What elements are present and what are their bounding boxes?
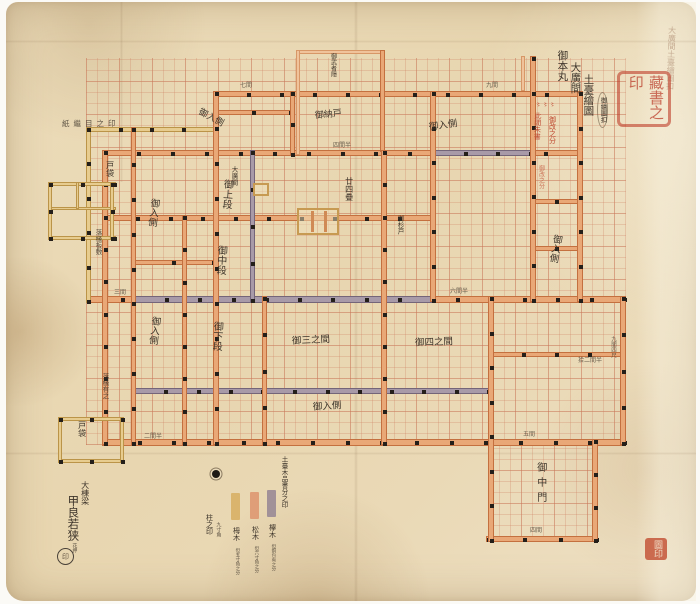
pillar-dot [81, 183, 85, 187]
note-ochien: 落椽有之 [101, 373, 108, 399]
legend-item-label: 松木 [251, 526, 259, 540]
foundation-beam [530, 199, 581, 204]
pillar-dot [49, 210, 53, 214]
pillar-dot [490, 401, 494, 405]
pillar-dot [532, 230, 536, 234]
foundation-beam [521, 56, 525, 91]
dim-label: 九間 [486, 83, 498, 89]
pillar-dot [150, 128, 154, 132]
pillar-dot [456, 298, 460, 302]
pillar-dot [555, 353, 559, 357]
pillar-dot [594, 440, 598, 444]
pillar-dot [579, 161, 583, 165]
pillar-dot [87, 162, 91, 166]
legend-swatch-yellow [231, 493, 240, 520]
pillar-dot [490, 435, 494, 439]
pillar-dot [291, 123, 295, 127]
small-cabinet-box [253, 183, 269, 196]
pillar-dot [432, 299, 436, 303]
pillar-dot [579, 299, 583, 303]
pillar-dot [383, 345, 387, 349]
pillar-dot [172, 261, 176, 265]
pillar-dot [432, 230, 436, 234]
title-line-2: 大廣間 [569, 62, 580, 94]
pillar-dot [519, 441, 523, 445]
pillar-dot [104, 313, 108, 317]
pillar-dot [532, 299, 536, 303]
pillar-dot [496, 152, 500, 156]
pillar-dot [215, 92, 219, 96]
pillar-dot [252, 111, 256, 115]
pillar-dot [276, 441, 280, 445]
pillar-dot [137, 152, 141, 156]
pillar-dot [594, 506, 598, 510]
legend-swatch-gray [267, 490, 276, 517]
pillar-dot [132, 337, 136, 341]
pillar-dot [365, 217, 369, 221]
pillar-dot [415, 441, 419, 445]
foundation-beam [620, 296, 626, 445]
legend-item-label: 栂木 [232, 527, 240, 541]
pillar-dot [383, 410, 387, 414]
pillar-dot [413, 93, 417, 97]
foundation-beam [48, 182, 116, 186]
pillar-dot [215, 197, 219, 201]
pillar-dot [111, 237, 115, 241]
pillar-dot [383, 216, 387, 220]
room-label-tobukuro-top: 戸袋 [105, 161, 114, 177]
pillar-dot [104, 410, 108, 414]
pillar-dot [183, 281, 187, 285]
foundation-beam [131, 127, 136, 445]
pillar-dot [298, 298, 302, 302]
pillar-dot [579, 196, 583, 200]
pillar-dot [215, 442, 219, 446]
pillar-dot [622, 406, 626, 410]
foundation-beam [102, 439, 626, 446]
pillar-dot [87, 266, 91, 270]
pillar-dot [280, 93, 284, 97]
legend-pillar-dot-symbol [212, 470, 220, 478]
pillar-dot [579, 127, 583, 131]
pillar-dot [532, 161, 536, 165]
legend-pillar-note: 九寸角 [215, 522, 220, 537]
pillar-dot [455, 390, 459, 394]
pillar-dot [136, 217, 140, 221]
pillar-dot [132, 233, 136, 237]
red-tick-marks: 〻〻〻 [536, 103, 557, 108]
paper-joint-mark: 紙繼目之印 [62, 120, 120, 128]
pillar-dot [132, 128, 136, 132]
foundation-beam [120, 417, 124, 463]
pillar-dot [183, 410, 187, 414]
foundation-beam [577, 91, 583, 302]
pillar-dot [104, 151, 108, 155]
pillar-dot [594, 473, 598, 477]
foundation-beam [58, 459, 124, 463]
pillar-dot [132, 302, 136, 306]
note-ochien-itajiki: 落椽板敷 [94, 229, 101, 255]
pillar-dot [432, 265, 436, 269]
legend-pillar-label: 柱之印 [205, 514, 213, 535]
pillar-dot [263, 442, 267, 446]
pillar-dot [358, 390, 362, 394]
pillar-dot [138, 441, 142, 445]
legend-item-note: 但六寸角之分 [253, 546, 258, 573]
pillar-dot [104, 345, 108, 349]
library-collection-seal: 藏書之印 [617, 71, 671, 127]
pillar-dot [544, 152, 548, 156]
foundation-beam [296, 50, 382, 54]
pillar-dot [490, 539, 494, 543]
pillar-dot [432, 92, 436, 96]
pillar-dot [522, 353, 526, 357]
pillar-dot [132, 407, 136, 411]
pillar-dot [559, 538, 563, 542]
pillar-dot [169, 217, 173, 221]
pillar-dot [579, 230, 583, 234]
stair-box-divider [324, 211, 327, 232]
pillar-dot [622, 297, 626, 301]
red-note-2: 御改之分 [548, 116, 556, 144]
dim-label: 三間 [114, 290, 126, 296]
pillar-dot [532, 195, 536, 199]
pillar-dot [49, 237, 53, 241]
pillar-dot [183, 216, 187, 220]
pillar-dot [383, 183, 387, 187]
pillar-dot [59, 418, 63, 422]
signature-rank: 大棟梁 [80, 481, 89, 505]
pillar-dot [229, 390, 233, 394]
pillar-dot [121, 298, 125, 302]
pillar-dot [215, 302, 219, 306]
dim-label: 五間 [523, 432, 535, 438]
dim-label: 九間四尺 [609, 336, 615, 358]
legend-swatch-orange [250, 492, 259, 519]
corner-seal: 圖印 [645, 538, 667, 560]
pillar-dot [215, 232, 219, 236]
pillar-dot [87, 128, 91, 132]
pillar-dot [132, 163, 136, 167]
foundation-beam [110, 182, 114, 240]
pillar-dot [307, 152, 311, 156]
pillar-dot [532, 57, 536, 61]
foundation-beam [250, 150, 255, 302]
dim-label: 七間 [240, 83, 252, 89]
pillar-dot [490, 332, 494, 336]
stair-box [297, 208, 339, 235]
pillar-dot [132, 372, 136, 376]
foundation-beam [262, 296, 267, 445]
pillar-dot [523, 298, 527, 302]
pillar-dot [313, 93, 317, 97]
pillar-dot [512, 93, 516, 97]
pillar-dot [171, 152, 175, 156]
pillar-dot [183, 248, 187, 252]
dim-label: 二間半 [144, 434, 162, 440]
foundation-beam [380, 50, 385, 152]
dim-label: 四間 [530, 528, 542, 534]
pillar-dot [293, 390, 297, 394]
pillar-dot [622, 442, 626, 446]
horizontal-fold-crease [6, 40, 696, 43]
foundation-beam [131, 260, 215, 265]
pillar-dot [183, 313, 187, 317]
title-annotation-oval: 御繪圖扣 [597, 92, 608, 128]
title-line-3: 土臺繪圖 [582, 74, 593, 116]
pillar-dot [87, 300, 91, 304]
title-line-1: 御本丸 [556, 50, 567, 82]
room-label-mushakakushi: 御武者隠 [329, 53, 335, 77]
foundation-beam [182, 215, 187, 445]
pillar-dot [132, 442, 136, 446]
red-note-1: 此間朱書 [533, 112, 542, 140]
pillar-dot [263, 333, 267, 337]
pillar-dot [291, 153, 295, 157]
pillar-dot [532, 264, 536, 268]
pillar-dot [273, 152, 277, 156]
foundation-beam [131, 296, 434, 303]
foundation-beam [48, 207, 116, 210]
pillar-dot [408, 152, 412, 156]
pillar-dot [104, 442, 108, 446]
pillar-dot [590, 298, 594, 302]
pillar-dot [490, 470, 494, 474]
room-label-chumon: 御中門 [534, 462, 545, 507]
pillar-dot [198, 298, 202, 302]
pillar-dot [164, 390, 168, 394]
pillar-dot [207, 441, 211, 445]
red-note-3: 御改之分 [537, 165, 543, 189]
room-label-irikawa-6: 御入側 [313, 401, 342, 413]
foundation-beam [290, 91, 295, 156]
room-label-chudan: 御中段 [213, 245, 225, 276]
pillar-dot [183, 442, 187, 446]
pillar-dot [81, 237, 85, 241]
pillar-dot [104, 280, 108, 284]
pillar-dot [346, 441, 350, 445]
pillar-dot [556, 298, 560, 302]
pillar-dot [554, 441, 558, 445]
pillar-dot [331, 298, 335, 302]
pillar-dot [132, 198, 136, 202]
pillar-dot [622, 370, 626, 374]
pillar-dot [594, 539, 598, 543]
pillar-dot [291, 92, 295, 96]
room-label-tobukuro-bottom: 戸袋 [77, 421, 86, 437]
pillar-dot [205, 152, 209, 156]
legend-item-note: 但銅包有之分 [270, 544, 275, 571]
pillar-dot [383, 313, 387, 317]
stair-box-divider [311, 211, 314, 232]
dim-label: 四間半 [333, 143, 351, 149]
scanned-floor-plan-page: { "title": { "lines": ["御本丸", "大廣間", "土臺… [0, 0, 700, 604]
legend-item-label: 欅木 [268, 524, 276, 538]
pillar-dot [311, 441, 315, 445]
pillar-dot [383, 280, 387, 284]
pillar-dot [251, 225, 255, 229]
foundation-beam [486, 536, 598, 542]
pillar-dot [365, 298, 369, 302]
pillar-dot [490, 504, 494, 508]
foundation-beam [86, 127, 91, 303]
pillar-dot [479, 93, 483, 97]
pillar-dot [545, 93, 549, 97]
pillar-dot [183, 377, 187, 381]
legend-header: 土臺木品書分之印 [280, 456, 287, 508]
foundation-beam [530, 56, 536, 302]
foundation-beam [488, 296, 494, 542]
pillar-dot [579, 265, 583, 269]
pillar-dot [383, 151, 387, 155]
room-label-gedan: 御下段 [209, 321, 221, 352]
room-label-sannoma: 御三之間 [292, 335, 330, 347]
signature-kao: 花押 [71, 543, 76, 553]
pillar-dot [239, 152, 243, 156]
pillar-dot [432, 161, 436, 165]
pillar-dot [183, 345, 187, 349]
pillar-dot [165, 298, 169, 302]
pillar-dot [450, 441, 454, 445]
pillar-dot [215, 407, 219, 411]
pillar-dot [104, 248, 108, 252]
dim-label: 拾二間半 [578, 358, 602, 364]
pillar-dot [326, 390, 330, 394]
pillar-dot [398, 298, 402, 302]
pillar-dot [104, 216, 108, 220]
pillar-dot [341, 152, 345, 156]
foundation-beam [592, 439, 598, 542]
signature-name: 甲良若狭 [67, 495, 79, 541]
plan-grid [86, 58, 626, 445]
pillar-dot [251, 151, 255, 155]
pillar-dot [132, 268, 136, 272]
foundation-beam [102, 150, 108, 445]
pillar-dot [490, 297, 494, 301]
note-tatami-count: 廿四疊 [344, 177, 353, 201]
pillar-dot [523, 538, 527, 542]
foundation-beam [213, 110, 292, 115]
pillar-dot [111, 210, 115, 214]
pillar-dot [121, 418, 125, 422]
pillar-dot [490, 366, 494, 370]
pillar-dot [87, 231, 91, 235]
pillar-dot [90, 460, 94, 464]
pillar-dot [383, 248, 387, 252]
pillar-dot [87, 197, 91, 201]
pillar-dot [119, 128, 123, 132]
pillar-dot [432, 196, 436, 200]
room-label-yonnoma: 御四之間 [415, 337, 453, 349]
pillar-dot [263, 297, 267, 301]
pillar-dot [555, 200, 559, 204]
pillar-dot [346, 93, 350, 97]
foundation-beam [296, 50, 300, 155]
note-sugido: 御杉戸 [396, 215, 403, 235]
foundation-beam [76, 182, 79, 209]
pillar-dot [390, 390, 394, 394]
room-label-jodan: 御上段 [219, 179, 232, 210]
pillar-dot [446, 93, 450, 97]
pillar-dot [201, 217, 205, 221]
foundation-beam [488, 352, 624, 357]
pillar-dot [263, 370, 267, 374]
pillar-dot [234, 217, 238, 221]
pillar-dot [251, 299, 255, 303]
pillar-dot [90, 418, 94, 422]
pillar-dot [532, 92, 536, 96]
pillar-dot [464, 152, 468, 156]
foundation-beam [381, 150, 387, 445]
pillar-dot [267, 217, 271, 221]
foundation-beam [430, 150, 532, 156]
pillar-dot [49, 183, 53, 187]
pillar-dot [383, 442, 387, 446]
pillar-dot [197, 390, 201, 394]
pillar-dot [121, 460, 125, 464]
pillar-dot [215, 372, 219, 376]
pillar-dot [263, 406, 267, 410]
pillar-dot [59, 460, 63, 464]
dim-label: 六間半 [450, 289, 468, 295]
pillar-dot [374, 152, 378, 156]
foundation-beam [48, 236, 116, 240]
pillar-dot [422, 390, 426, 394]
pillar-dot [242, 441, 246, 445]
pillar-dot [622, 333, 626, 337]
pillar-dot [111, 183, 115, 187]
pillar-dot [247, 93, 251, 97]
pillar-dot [182, 128, 186, 132]
pillar-dot [383, 377, 387, 381]
pillar-dot [215, 162, 219, 166]
pillar-dot [172, 441, 176, 445]
pillar-dot [251, 262, 255, 266]
foundation-beam [48, 182, 52, 240]
foundation-beam [58, 417, 124, 421]
pillar-dot [232, 298, 236, 302]
foundation-beam [58, 417, 62, 463]
foundation-beam [213, 91, 581, 97]
legend-item-note: 但五寸角之分 [234, 548, 239, 575]
